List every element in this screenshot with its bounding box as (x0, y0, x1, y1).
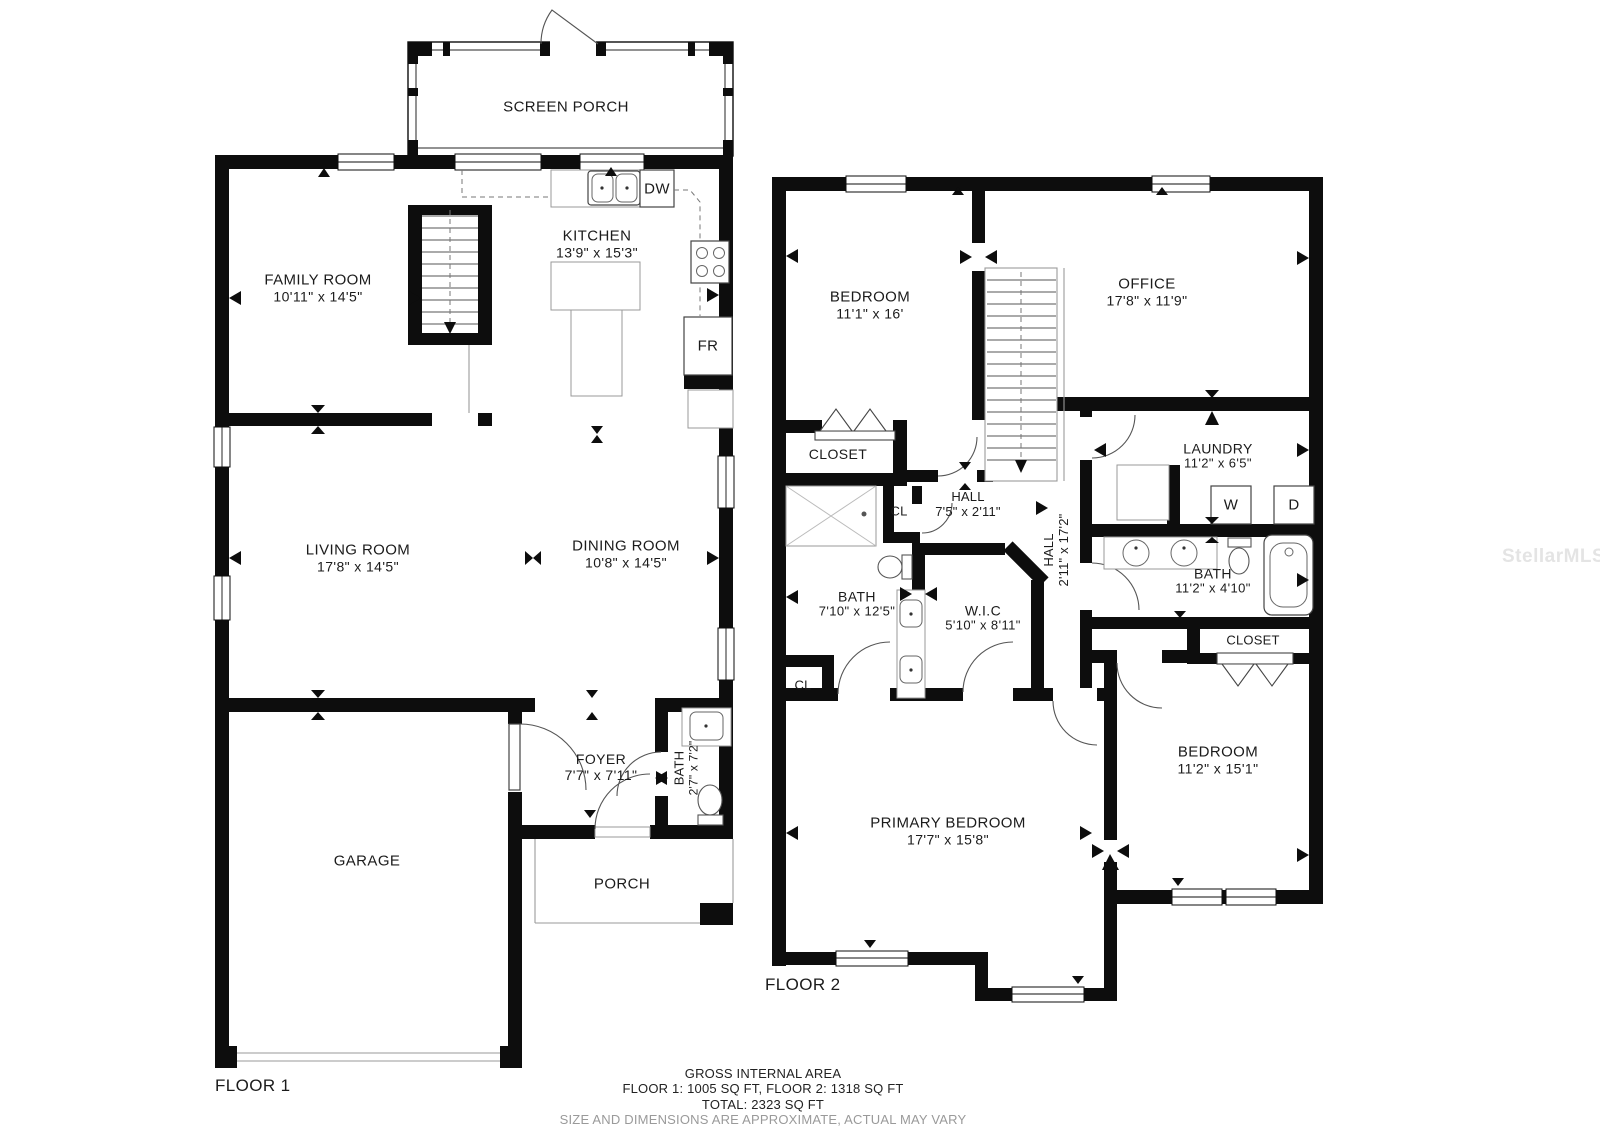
garage-door-leaf (509, 724, 520, 790)
room-label-hall-upper: HALL 7'5" x 2'11" (935, 490, 1001, 520)
floor2-stairs (985, 268, 1064, 481)
laundry-fixtures (1117, 465, 1314, 524)
room-label-bedroom-bottom: BEDROOM 11'2" x 15'1" (1178, 743, 1259, 776)
window (338, 154, 394, 170)
bath3-vanity (897, 590, 925, 698)
bedroom1-door-arc (938, 437, 977, 476)
bath3-toilet (878, 556, 902, 578)
floor1-opening-markers (229, 167, 719, 818)
window (718, 628, 734, 680)
room-label-cl-lower: CL (794, 679, 811, 694)
room-label-laundry: LAUNDRY 11'2" x 6'5" (1183, 440, 1252, 471)
room-label-wic: W.I.C 5'10" x 8'11" (945, 602, 1021, 633)
room-label-bath1: BATH 2'7" x 7'2" (673, 741, 702, 796)
floorplan-drawing (0, 0, 1600, 1130)
window (836, 951, 908, 966)
window (846, 176, 906, 192)
floor1-tag: FLOOR 1 (215, 1076, 291, 1096)
room-label-foyer: FOYER 7'7" x 7'11" (565, 751, 638, 783)
appliance-label-w: W (1224, 496, 1239, 513)
kitchen-fixtures (462, 170, 733, 428)
room-label-office: OFFICE 17'8" x 11'9" (1107, 275, 1188, 308)
porch-door-arc (541, 10, 598, 44)
floor1-stairs (422, 210, 478, 413)
window (1012, 987, 1084, 1002)
room-label-hall-vertical: HALL 2'11" x 17'2" (1042, 514, 1072, 587)
window (214, 427, 230, 467)
room-label-bedroom-top: BEDROOM 11'1" x 16' (830, 288, 910, 321)
appliance-label-fr: FR (698, 337, 719, 354)
floor1-screen-porch (408, 10, 733, 156)
primary-door-arc (1053, 701, 1097, 745)
floor-areas: FLOOR 1: 1005 SQ FT, FLOOR 2: 1318 SQ FT (560, 1081, 967, 1096)
appliance-label-d: D (1288, 496, 1299, 513)
room-label-cl-upper: CL (890, 505, 907, 520)
pantry-alcove (688, 390, 733, 428)
room-label-bath-right: BATH 11'2" x 4'10" (1175, 565, 1251, 596)
room-label-primary-bedroom: PRIMARY BEDROOM 17'7" x 15'8" (870, 814, 1025, 847)
stove-icon (691, 241, 729, 283)
floor2-tag: FLOOR 2 (765, 975, 841, 995)
gross-area-title: GROSS INTERNAL AREA (560, 1066, 967, 1081)
room-label-bath-left: BATH 7'10" x 12'5" (819, 588, 896, 619)
bedroom2-door-arc (1117, 663, 1162, 708)
wic-door-arc (963, 642, 1013, 692)
room-label-closet-right: CLOSET (1226, 634, 1279, 649)
room-label-family-room: FAMILY ROOM 10'11" x 14'5" (264, 271, 371, 304)
bath3-door-arc (838, 642, 890, 694)
window (214, 576, 230, 620)
window (1226, 889, 1276, 905)
kitchen-sink (588, 171, 640, 205)
laundry-counter (1117, 465, 1169, 520)
stellar-mls-watermark: StellarMLS (1502, 546, 1600, 568)
room-label-screen-porch: SCREEN PORCH (503, 98, 629, 115)
front-door-threshold (595, 827, 650, 837)
bath2-door-arc (1092, 563, 1139, 610)
bath1-toilet (698, 785, 722, 815)
disclaimer: SIZE AND DIMENSIONS ARE APPROXIMATE, ACT… (560, 1112, 967, 1127)
kitchen-island-lower (571, 310, 622, 396)
room-label-kitchen: KITCHEN 13'9" x 15'3" (556, 227, 638, 260)
room-label-porch: PORCH (594, 875, 650, 892)
floorplan-page: SCREEN PORCH FAMILY ROOM 10'11" x 14'5" … (0, 0, 1600, 1130)
area-summary: GROSS INTERNAL AREA FLOOR 1: 1005 SQ FT,… (560, 1066, 967, 1127)
room-label-garage: GARAGE (334, 852, 401, 869)
room-label-dining-room: DINING ROOM 10'8" x 14'5" (572, 537, 680, 570)
window (455, 154, 541, 170)
appliance-label-dw: DW (644, 180, 670, 197)
window (718, 456, 734, 508)
bath2-vanity (1104, 537, 1217, 569)
window (1172, 889, 1222, 905)
window (580, 154, 644, 170)
bath2-tub (1264, 535, 1313, 615)
room-label-closet-left: CLOSET (809, 446, 867, 462)
floor1-interior-walls (215, 205, 733, 1068)
porch-and-garage-lines (237, 839, 733, 1061)
room-label-living-room: LIVING ROOM 17'8" x 14'5" (306, 541, 410, 574)
porch-door-opening (550, 40, 596, 52)
total-area: TOTAL: 2323 SQ FT (560, 1097, 967, 1112)
kitchen-island (551, 262, 640, 310)
